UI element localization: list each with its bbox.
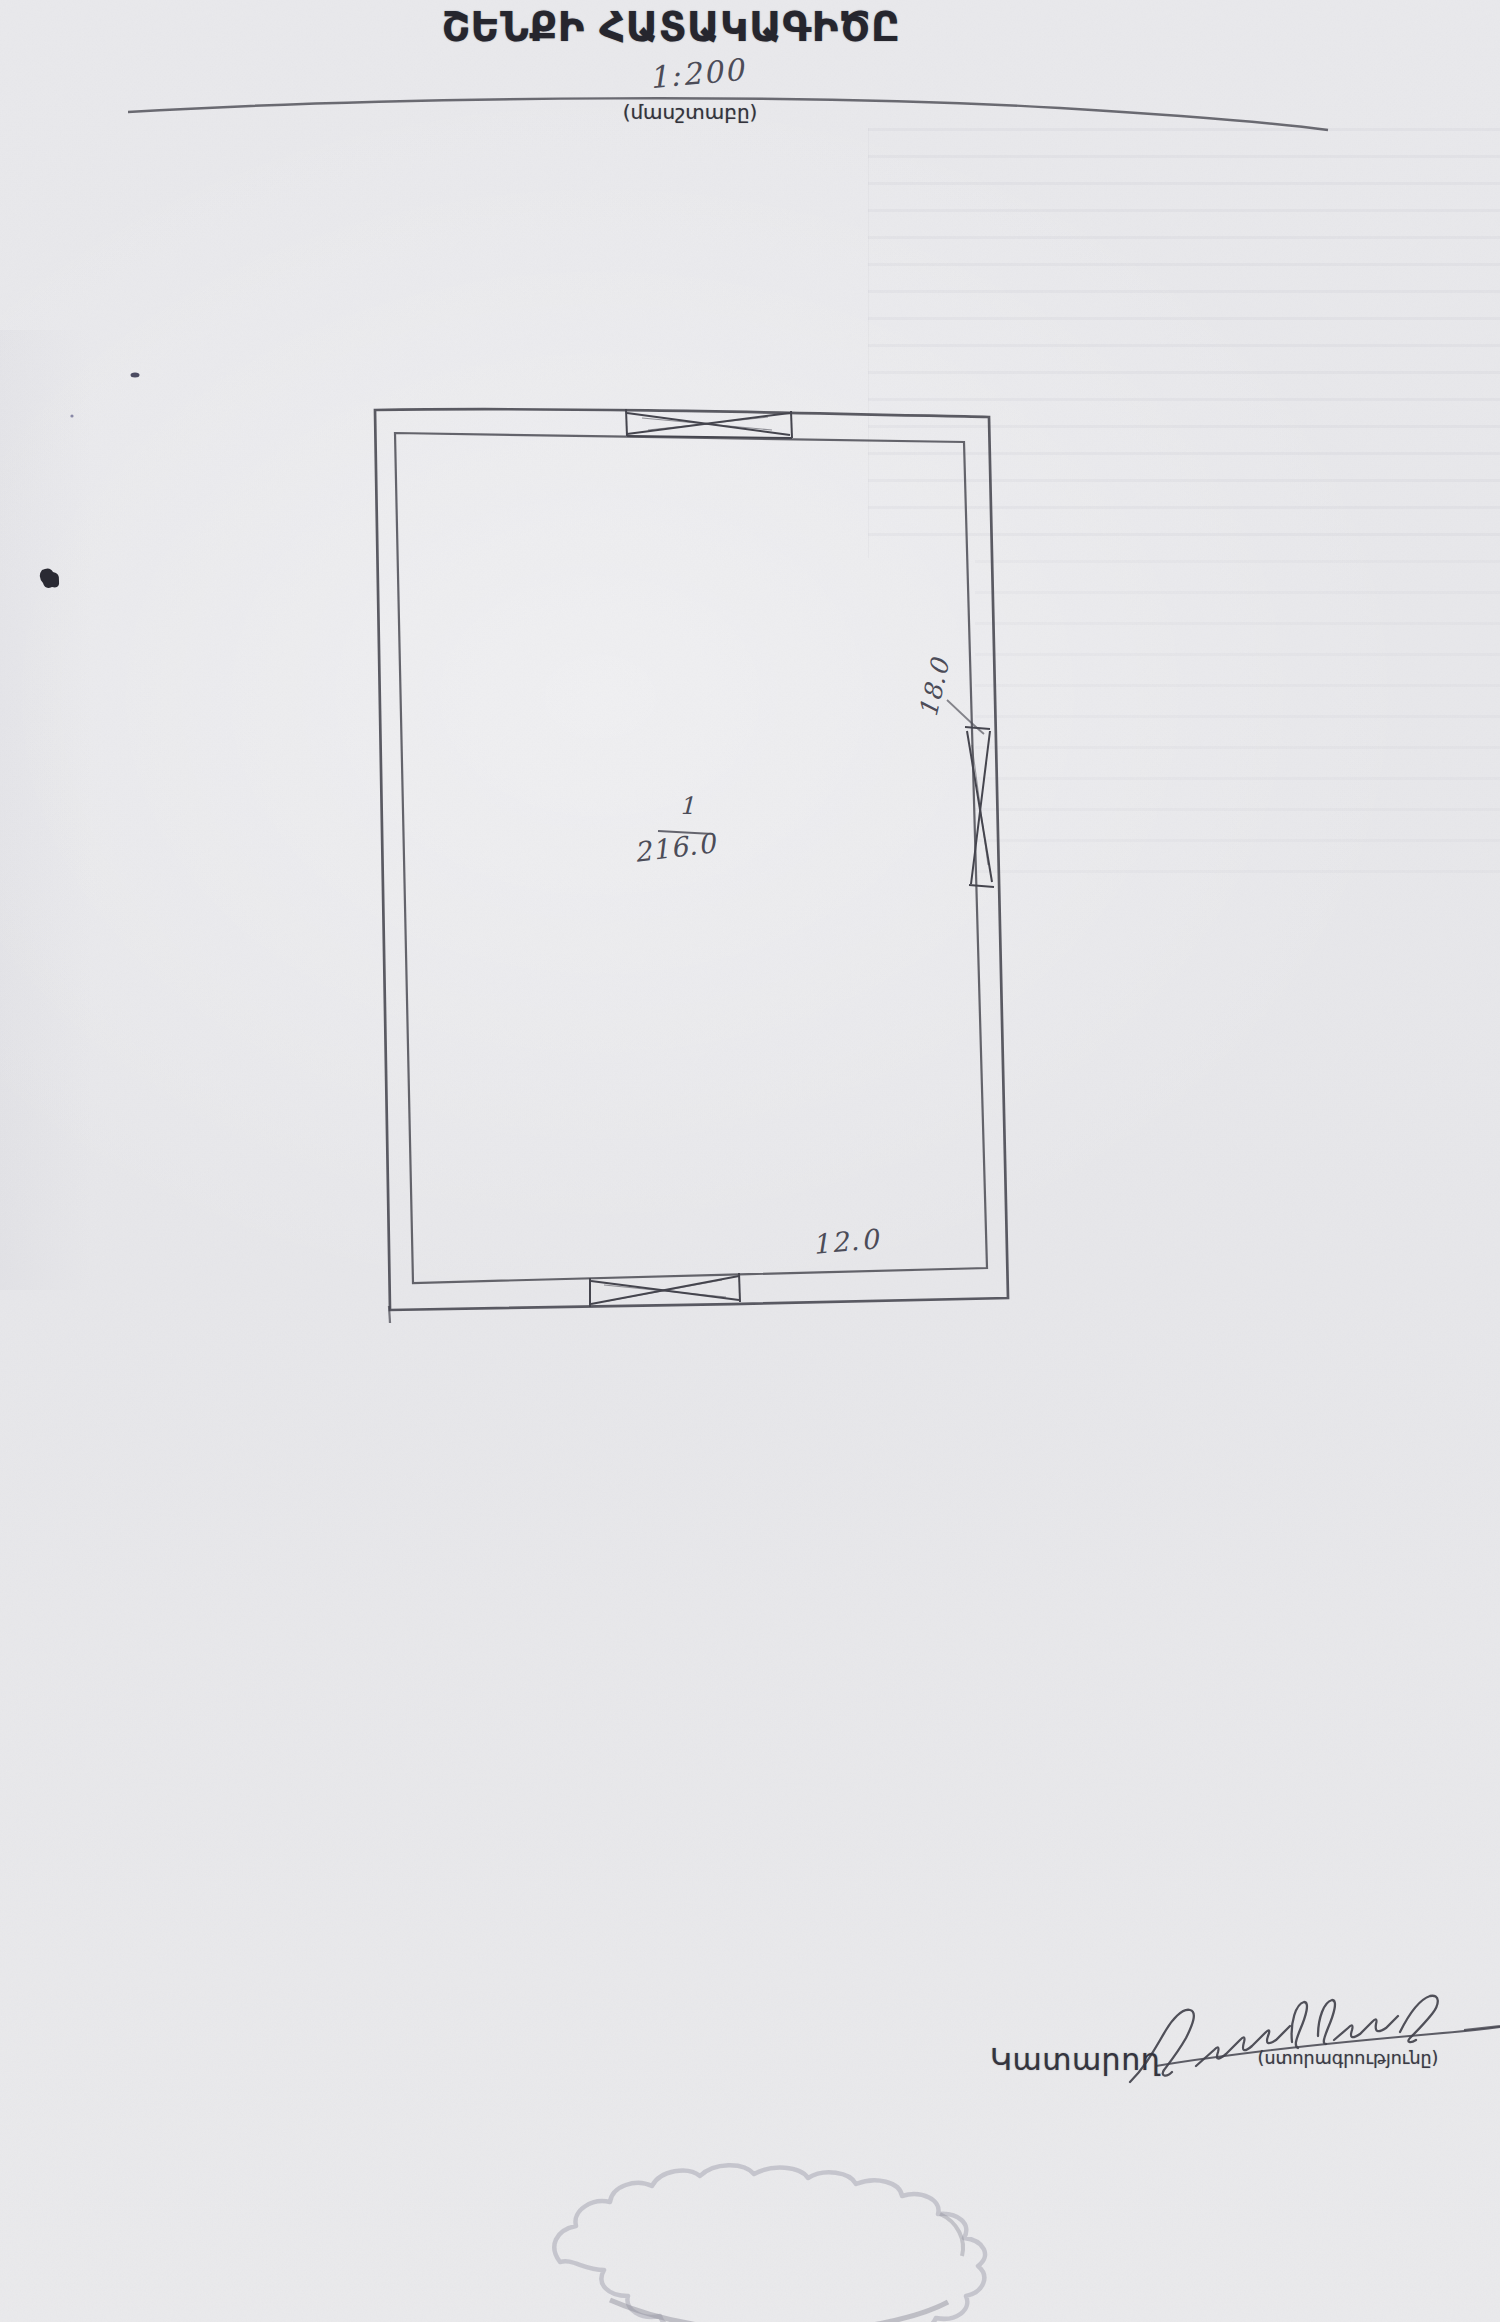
signature-caption: (ստորագրությունը) <box>1241 2048 1455 2068</box>
scan-streaks-left <box>0 330 95 1290</box>
dimension-right-height-label: 18.0 <box>911 643 961 732</box>
scan-streaks-mid-right <box>975 560 1500 890</box>
scan-streaks-top-right <box>868 128 1500 558</box>
dimension-bottom-width-label: 12.0 <box>797 1222 895 1261</box>
stamp-outline <box>554 2165 985 2322</box>
signature-line-dash <box>1464 2026 1500 2030</box>
signature-image <box>1130 1996 1438 2082</box>
scale-caption: (մասշտաբը) <box>578 100 802 124</box>
executor-label: Կատարող <box>990 2042 1160 2077</box>
ink-speck-1 <box>131 373 140 378</box>
scanned-document-page: ՇԵՆՔԻ ՀԱՏԱԿԱԳԻԾԸ 1:200 (մասշտաբը) 1 216.… <box>0 0 1500 2322</box>
outer-wall-overshoot <box>389 1306 390 1323</box>
page-title: ՇԵՆՔԻ ՀԱՏԱԿԱԳԻԾԸ <box>330 4 1012 50</box>
window-top <box>626 409 792 438</box>
window-bottom <box>590 1273 740 1307</box>
room-area-label: 216.0 <box>617 825 734 870</box>
scale-value: 1:200 <box>611 49 783 99</box>
room-number-label: 1 <box>665 792 709 820</box>
